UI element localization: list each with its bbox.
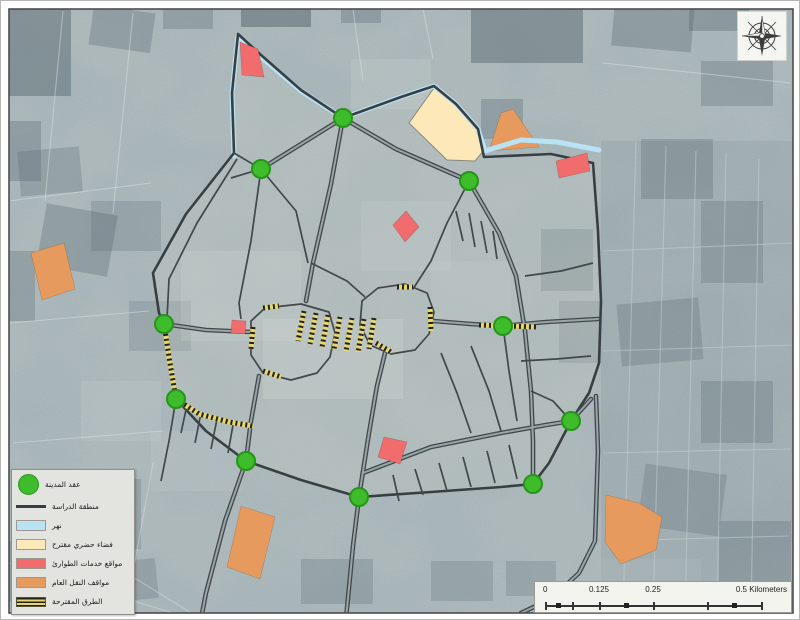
scale-label-0: 0 (543, 585, 547, 594)
compass-rose-icon (740, 14, 784, 58)
legend-swatch-rect (16, 577, 46, 588)
city-node-marker (155, 315, 173, 333)
legend-item-label: فضاء حضري مقترح (52, 541, 113, 549)
city-node-marker (252, 160, 270, 178)
legend-swatch-rect (16, 520, 46, 531)
legend-swatch-rect (16, 558, 46, 569)
satellite-patch (163, 1, 213, 29)
city-node-marker (334, 109, 352, 127)
legend-item-label: الطرق المقترحة (52, 598, 102, 606)
satellite-patch (471, 1, 583, 63)
legend-item-label: منطقة الدراسة (52, 503, 99, 511)
north-arrow (737, 11, 787, 61)
satellite-patch (91, 201, 161, 251)
city-node-marker (460, 172, 478, 190)
satellite-patch (341, 1, 381, 23)
legend-item-label: نهر (52, 522, 62, 530)
city-node-marker (562, 412, 580, 430)
legend-item: مواقع خدمات الطوارئ (16, 554, 130, 573)
satellite-patch (301, 559, 373, 604)
legend-item: فضاء حضري مقترح (16, 535, 130, 554)
satellite-patch (431, 561, 493, 601)
scale-bar: 0 0.125 0.25 0.5 Kilometers (534, 581, 792, 613)
proposed-road-base (263, 306, 279, 308)
map-figure: عقد المدينةمنطقة الدراسةنهرفضاء حضري مقت… (0, 0, 800, 620)
scale-label-025: 0.25 (645, 585, 661, 594)
map-legend: عقد المدينةمنطقة الدراسةنهرفضاء حضري مقت… (11, 469, 135, 615)
legend-item: نهر (16, 516, 130, 535)
legend-item-label: مواقف النقل العام (52, 579, 109, 587)
legend-item: عقد المدينة (16, 472, 130, 497)
scale-bar-rule (535, 601, 791, 611)
legend-swatch-line (16, 505, 46, 508)
city-node-marker (167, 390, 185, 408)
city-node-marker (350, 488, 368, 506)
city-node-marker (237, 452, 255, 470)
legend-item: الطرق المقترحة (16, 592, 130, 611)
satellite-patch (1, 121, 41, 181)
legend-swatch-hatch (16, 597, 46, 607)
legend-item: منطقة الدراسة (16, 497, 130, 516)
legend-swatch-rect (16, 539, 46, 550)
legend-item: مواقف النقل العام (16, 573, 130, 592)
satellite-patch (1, 251, 35, 321)
legend-item-label: مواقع خدمات الطوارئ (52, 560, 122, 568)
emergency-site-polygon (231, 320, 246, 334)
city-node-marker (524, 475, 542, 493)
legend-item-label: عقد المدينة (45, 481, 81, 489)
city-node-marker (494, 317, 512, 335)
satellite-patch (701, 61, 773, 106)
satellite-patch (241, 1, 311, 27)
legend-swatch-circle (18, 474, 39, 495)
satellite-patch (1, 1, 71, 96)
scale-label-0125: 0.125 (589, 585, 609, 594)
scale-label-05km: 0.5 Kilometers (736, 585, 787, 594)
satellite-patch (89, 5, 156, 53)
